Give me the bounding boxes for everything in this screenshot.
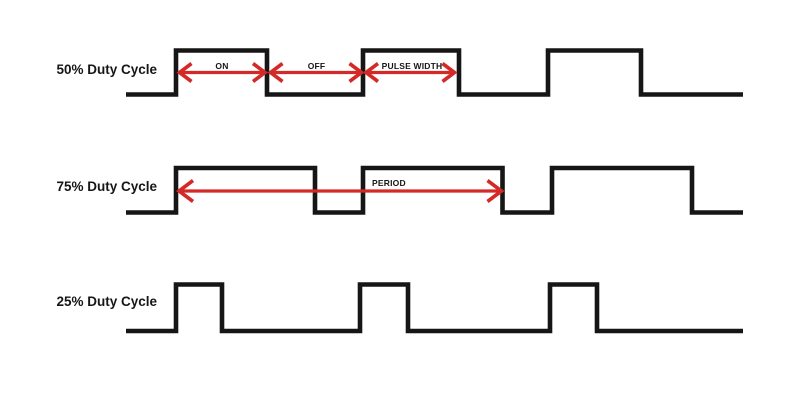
- annotation-label-period: PERIOD: [372, 178, 406, 188]
- diagram-background: [0, 0, 800, 400]
- annotation-label-on: ON: [215, 61, 228, 71]
- row-label-50: 50% Duty Cycle: [56, 62, 157, 77]
- row-label-25: 25% Duty Cycle: [56, 294, 157, 309]
- annotation-label-off: OFF: [308, 61, 326, 71]
- pwm-duty-cycle-diagram: 50% Duty Cycle75% Duty Cycle25% Duty Cyc…: [0, 0, 800, 400]
- row-label-75: 75% Duty Cycle: [56, 179, 157, 194]
- annotation-label-pulse-width: PULSE WIDTH: [382, 61, 443, 71]
- waveform-canvas: 50% Duty Cycle75% Duty Cycle25% Duty Cyc…: [0, 0, 800, 400]
